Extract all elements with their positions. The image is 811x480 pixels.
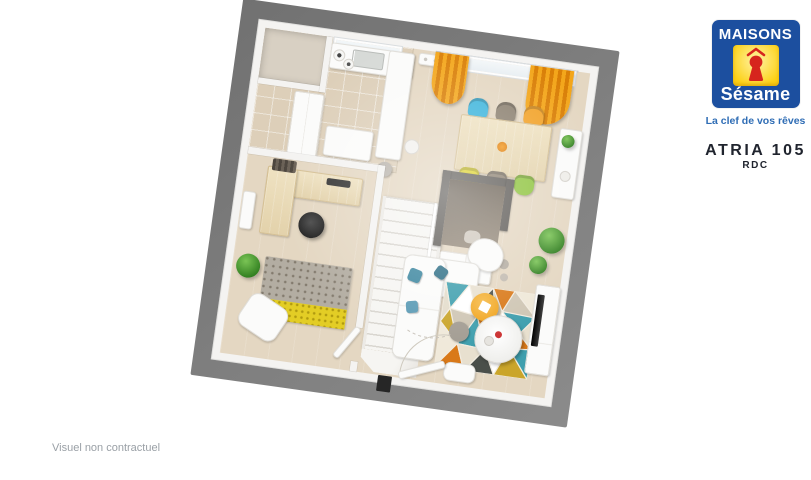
disclaimer-text: Visuel non contractuel: [52, 442, 160, 454]
page: MAISONS Sésame La clef de vos rêves ATRI…: [0, 0, 811, 480]
floor-plan-3d: [190, 0, 619, 428]
logo-text-maisons: MAISONS: [712, 20, 800, 43]
entry-tech-box: [376, 375, 392, 393]
kitchen-island: [322, 125, 374, 161]
plan-title: ATRIA 105: [700, 142, 811, 160]
sofa-pillow-2: [406, 300, 419, 313]
logo-tagline: La clef de vos rêves: [700, 115, 811, 127]
keyhole-icon: [733, 45, 779, 86]
plan-floor-label: RDC: [700, 160, 811, 171]
office-wall-stub: [349, 361, 357, 372]
logo-yellow-square: [733, 45, 779, 86]
logo-text-sesame: Sésame: [712, 84, 800, 105]
brand-block: MAISONS Sésame La clef de vos rêves ATRI…: [700, 20, 811, 171]
maisons-sesame-logo: MAISONS Sésame: [712, 20, 800, 108]
